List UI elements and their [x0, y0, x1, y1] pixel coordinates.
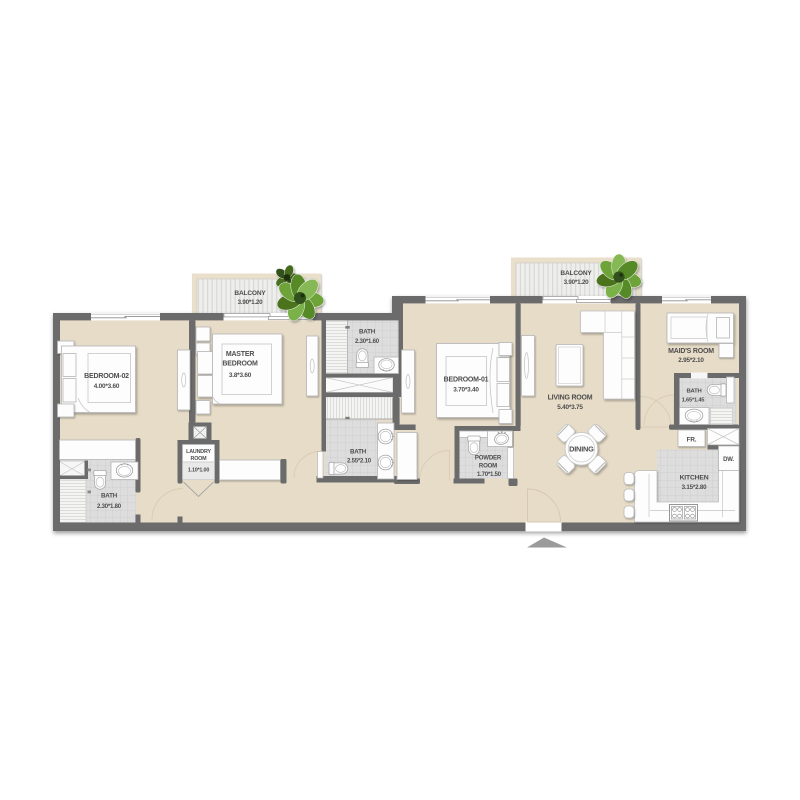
svg-text:BALCONY: BALCONY — [560, 270, 592, 277]
svg-text:2.95*2.10: 2.95*2.10 — [678, 357, 704, 364]
svg-text:1.65*1.45: 1.65*1.45 — [682, 398, 705, 404]
svg-text:2.30*1.60: 2.30*1.60 — [355, 339, 380, 345]
svg-text:2.30*1.80: 2.30*1.80 — [97, 504, 122, 510]
svg-text:BATH: BATH — [359, 329, 376, 336]
svg-text:KITCHEN: KITCHEN — [680, 475, 709, 482]
svg-text:POWDER: POWDER — [475, 455, 502, 462]
svg-text:3.15*2.80: 3.15*2.80 — [682, 484, 707, 491]
svg-text:3.70*3.40: 3.70*3.40 — [453, 387, 479, 394]
svg-text:1.70*1.50: 1.70*1.50 — [477, 472, 502, 478]
svg-text:2.55*2.10: 2.55*2.10 — [347, 459, 372, 465]
svg-text:BEDROOM-02: BEDROOM-02 — [84, 373, 129, 380]
svg-text:5.40*3.75: 5.40*3.75 — [557, 404, 583, 411]
svg-text:4.00*3.60: 4.00*3.60 — [94, 383, 120, 390]
svg-text:1.10*1.00: 1.10*1.00 — [188, 468, 209, 474]
svg-text:ROOM: ROOM — [479, 463, 497, 470]
svg-text:LAUNDRY: LAUNDRY — [186, 449, 211, 455]
svg-text:BATH: BATH — [101, 493, 118, 500]
svg-text:MAID'S ROOM: MAID'S ROOM — [668, 348, 714, 355]
svg-text:BEDROOM: BEDROOM — [222, 361, 258, 368]
svg-text:3.90*1.20: 3.90*1.20 — [238, 299, 263, 306]
svg-text:LIVING ROOM: LIVING ROOM — [548, 395, 593, 402]
svg-text:DINING: DINING — [569, 445, 594, 454]
svg-text:BATH: BATH — [350, 449, 367, 456]
svg-text:BALCONY: BALCONY — [234, 290, 266, 297]
svg-text:ROOM: ROOM — [191, 456, 208, 462]
svg-text:MASTER: MASTER — [226, 351, 255, 358]
svg-text:BATH: BATH — [686, 389, 701, 395]
svg-text:3.8*3.60: 3.8*3.60 — [229, 372, 252, 379]
svg-text:BEDROOM-01: BEDROOM-01 — [444, 377, 489, 384]
svg-text:DW.: DW. — [723, 457, 734, 463]
svg-text:3.90*1.20: 3.90*1.20 — [564, 279, 589, 286]
svg-text:FR.: FR. — [687, 437, 697, 444]
